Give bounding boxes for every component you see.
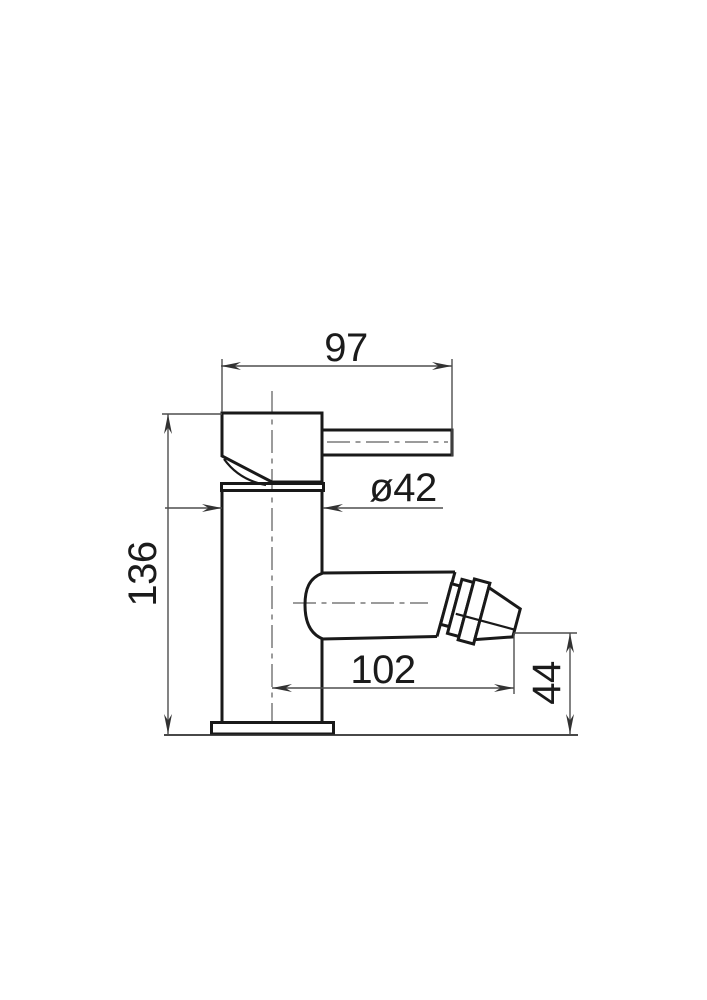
dimension-lever-reach: 97 bbox=[221, 326, 452, 456]
base-flange bbox=[212, 723, 334, 735]
dimension-outlet-height: 44 bbox=[514, 633, 577, 734]
dim-label-outlet-height: 44 bbox=[525, 661, 569, 705]
technical-drawing-canvas: 97 ø42 136 102 bbox=[0, 0, 707, 1000]
spout-dome-cap bbox=[305, 573, 323, 639]
aerator-nozzle bbox=[438, 574, 525, 654]
dim-label-overall-height: 136 bbox=[121, 541, 165, 606]
dimension-overall-height: 136 bbox=[121, 414, 222, 734]
dim-label-spout-reach: 102 bbox=[350, 648, 415, 692]
spout-top-edge bbox=[322, 572, 455, 573]
drawing-page: 97 ø42 136 102 bbox=[0, 0, 707, 1000]
spout-bottom-edge bbox=[322, 637, 437, 640]
head-dome-arc bbox=[224, 459, 266, 485]
dimension-spout-reach: 102 bbox=[272, 633, 514, 694]
dim-label-body-diameter: ø42 bbox=[369, 466, 436, 510]
dim-label-lever-reach: 97 bbox=[324, 326, 368, 370]
